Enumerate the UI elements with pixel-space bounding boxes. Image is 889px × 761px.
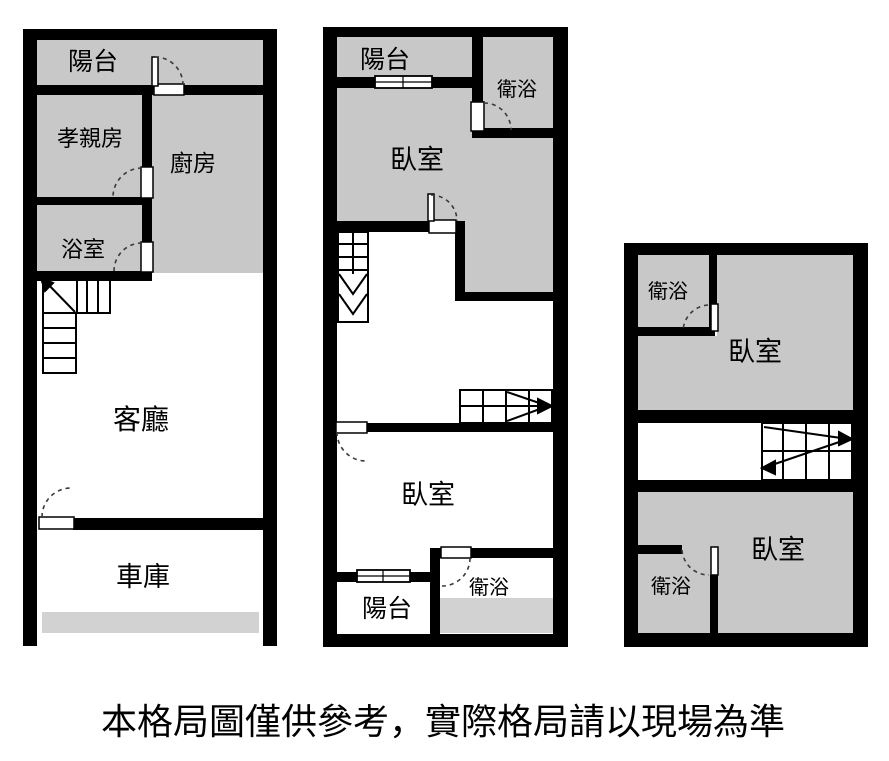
door-leaf — [152, 57, 158, 86]
door-leaf — [428, 194, 434, 221]
room-label-bathroom-lower: 衛浴 — [651, 575, 691, 598]
window-icon — [357, 570, 410, 582]
floorplan-page: 陽台 孝親房 廚房 浴室 客廳 車庫 — [0, 0, 889, 761]
door-leaf — [711, 547, 718, 575]
room-label-kitchen: 廚房 — [170, 150, 216, 176]
door-leaf — [471, 102, 484, 131]
room-bedroom-upper-ext — [638, 336, 717, 410]
door-threshold — [429, 220, 456, 233]
garage-door-strip — [42, 612, 259, 633]
room-label-bathroom-f1: 浴室 — [61, 237, 105, 262]
room-bedroom-lower — [638, 492, 853, 633]
door-threshold — [39, 517, 74, 529]
room-label-bedroom-upper: 臥室 — [728, 337, 782, 367]
staircase-f3 — [762, 423, 852, 480]
room-label-garage: 車庫 — [116, 562, 170, 592]
room-label-living: 客廳 — [113, 404, 169, 435]
door-leaf — [711, 304, 718, 331]
window-icon — [375, 76, 432, 88]
room-label-bedroom-lower: 臥室 — [751, 535, 805, 565]
room-label-parents: 孝親房 — [57, 126, 123, 151]
disclaimer-caption: 本格局圖僅供參考，實際格局請以現場為準 — [101, 701, 785, 742]
door-threshold — [441, 547, 471, 558]
room-label-bedroom-rear: 臥室 — [401, 480, 455, 510]
door-threshold — [336, 422, 367, 433]
door-leaf — [141, 167, 153, 198]
staircase-f2-down — [460, 390, 552, 423]
room-label-bathroom-front: 衛浴 — [497, 78, 537, 101]
room-kitchen-f1 — [152, 95, 263, 273]
room-label-bedroom-front: 臥室 — [390, 145, 444, 175]
room-label-balcony-rear: 陽台 — [362, 595, 412, 623]
room-label-balcony-front: 陽台 — [360, 46, 410, 74]
room-label-bathroom-rear: 衛浴 — [469, 576, 509, 599]
room-label-balcony-f1: 陽台 — [68, 48, 118, 76]
door-leaf — [141, 242, 153, 272]
room-label-bathroom-upper: 衛浴 — [648, 280, 688, 303]
floorplan-svg: 陽台 孝親房 廚房 浴室 客廳 車庫 — [0, 0, 889, 761]
room-bedroom-upper — [717, 255, 853, 410]
bathroom-rear-strip — [440, 598, 553, 633]
staircase-f2-up — [338, 232, 368, 322]
